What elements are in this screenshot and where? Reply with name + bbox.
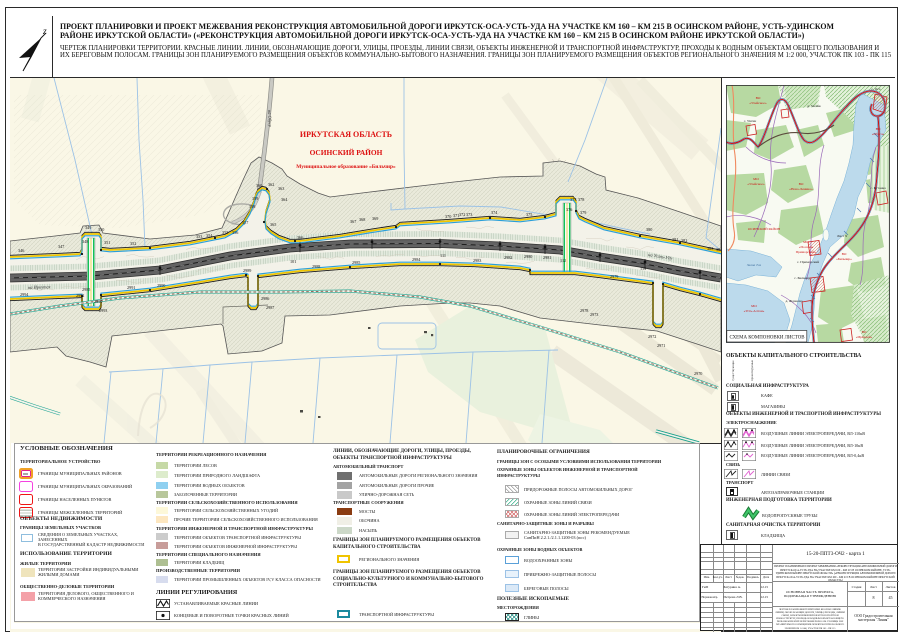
svg-text:354: 354 xyxy=(206,233,213,238)
svg-text:2981: 2981 xyxy=(543,255,551,260)
svg-text:на Обусу: на Обусу xyxy=(267,110,273,127)
svg-text:«Улейское»: «Улейское» xyxy=(747,182,764,186)
svg-text:2988: 2988 xyxy=(312,264,320,269)
svg-text:2993: 2993 xyxy=(99,308,107,313)
svg-text:381: 381 xyxy=(672,237,678,242)
svg-text:356: 356 xyxy=(232,230,238,235)
svg-text:Залив Тга: Залив Тга xyxy=(747,263,761,267)
svg-text:с. Унгин: с. Унгин xyxy=(744,119,757,123)
svg-text:«Поселок: «Поселок xyxy=(799,245,814,249)
svg-text:362: 362 xyxy=(268,182,274,187)
svg-text:383: 383 xyxy=(707,246,713,251)
svg-text:2990: 2990 xyxy=(94,299,102,304)
svg-text:2982: 2982 xyxy=(504,255,512,260)
svg-text:112: 112 xyxy=(560,258,566,263)
svg-text:2972: 2972 xyxy=(648,334,656,339)
svg-text:«Улейское»: «Улейское» xyxy=(749,101,766,105)
svg-text:351: 351 xyxy=(104,240,110,245)
svg-text:с. Кутанка: с. Кутанка xyxy=(870,186,886,190)
svg-text:с. Оса: с. Оса xyxy=(872,87,881,91)
svg-text:ВО: ВО xyxy=(842,252,847,256)
svg-text:ИРКУТСКАЯ ОБЛАСТЬ: ИРКУТСКАЯ ОБЛАСТЬ xyxy=(300,130,392,139)
svg-text:101: 101 xyxy=(290,259,296,264)
svg-text:ВО: ВО xyxy=(799,182,804,186)
svg-text:2979: 2979 xyxy=(610,274,618,279)
svg-text:347: 347 xyxy=(58,244,64,249)
svg-text:на Иркутск: на Иркутск xyxy=(28,284,52,290)
svg-text:2985: 2985 xyxy=(82,287,90,292)
svg-text:2980: 2980 xyxy=(524,254,532,259)
svg-text:373: 373 xyxy=(466,212,472,217)
svg-text:z: z xyxy=(42,27,47,37)
svg-text:375: 375 xyxy=(526,212,532,217)
svg-text:360: 360 xyxy=(256,183,262,188)
svg-text:379: 379 xyxy=(580,210,586,215)
svg-text:366: 366 xyxy=(297,235,303,240)
svg-text:374: 374 xyxy=(491,210,498,215)
svg-text:ОСИНСКИЙ РАЙОН: ОСИНСКИЙ РАЙОН xyxy=(310,148,383,157)
svg-text:Муниципальное образование «Бил: Муниципальное образование «Бильчир» xyxy=(296,163,396,170)
svg-text:«Усть-Алтан»: «Усть-Алтан» xyxy=(744,309,765,313)
svg-text:372: 372 xyxy=(459,212,465,217)
svg-text:365: 365 xyxy=(270,222,276,227)
svg-text:2991: 2991 xyxy=(127,285,135,290)
svg-text:369: 369 xyxy=(372,216,378,221)
svg-text:Приморский»: Приморский» xyxy=(796,250,817,254)
svg-text:МО: МО xyxy=(753,177,759,181)
svg-text:358: 358 xyxy=(249,204,255,209)
svg-text:МО: МО xyxy=(803,240,809,244)
svg-text:ВО: ВО xyxy=(756,96,761,100)
svg-text:111: 111 xyxy=(440,253,446,258)
svg-text:2992: 2992 xyxy=(76,293,84,298)
svg-text:350: 350 xyxy=(98,227,104,232)
svg-text:363: 363 xyxy=(278,186,284,191)
svg-text:355: 355 xyxy=(222,230,228,235)
svg-text:2984: 2984 xyxy=(412,257,421,262)
svg-text:«Бильчир»: «Бильчир» xyxy=(836,257,852,261)
svg-text:с. Приморский: с. Приморский xyxy=(797,260,819,264)
svg-text:346: 346 xyxy=(18,248,24,253)
svg-text:2986: 2986 xyxy=(261,296,269,301)
svg-text:2983: 2983 xyxy=(473,258,481,263)
svg-text:ВО: ВО xyxy=(876,127,881,131)
svg-text:Лист 9: Лист 9 xyxy=(837,234,847,238)
svg-text:ВО: ВО xyxy=(862,330,867,334)
svg-text:2973: 2973 xyxy=(590,312,598,317)
svg-text:МО: МО xyxy=(751,304,757,308)
svg-text:2985: 2985 xyxy=(352,260,360,265)
svg-text:353: 353 xyxy=(196,234,202,239)
svg-text:2987: 2987 xyxy=(266,305,274,310)
svg-text:367: 367 xyxy=(350,219,356,224)
svg-text:«Ирхидей»: «Ирхидей» xyxy=(856,335,873,339)
svg-text:2978: 2978 xyxy=(580,308,588,313)
svg-text:2990: 2990 xyxy=(157,283,165,288)
svg-text:ОСИНСКИЙ РАЙОН: ОСИНСКИЙ РАЙОН xyxy=(748,226,781,231)
svg-text:«Ново-Ленино»: «Ново-Ленино» xyxy=(789,187,813,191)
svg-text:348: 348 xyxy=(82,239,88,244)
svg-text:2989: 2989 xyxy=(243,268,251,273)
svg-text:378: 378 xyxy=(578,197,584,202)
svg-text:с. Бильчир: с. Бильчир xyxy=(794,276,810,280)
svg-text:д. Заглик: д. Заглик xyxy=(807,104,821,108)
svg-text:357: 357 xyxy=(242,220,248,225)
svg-text:2971: 2971 xyxy=(657,343,665,348)
svg-text:380: 380 xyxy=(646,227,652,232)
svg-text:368: 368 xyxy=(359,217,365,222)
svg-text:2970: 2970 xyxy=(694,371,702,376)
svg-text:2994: 2994 xyxy=(20,292,29,297)
svg-text:382: 382 xyxy=(681,238,687,243)
svg-text:376: 376 xyxy=(566,207,572,212)
svg-text:352: 352 xyxy=(130,241,136,246)
svg-text:д. Жданово: д. Жданово xyxy=(785,299,802,303)
svg-text:364: 364 xyxy=(281,197,288,202)
svg-text:349: 349 xyxy=(85,225,91,230)
svg-text:СХЕМА КОМПОНОВКИ ЛИСТОВ: СХЕМА КОМПОНОВКИ ЛИСТОВ xyxy=(730,336,806,341)
svg-text:359: 359 xyxy=(252,196,258,201)
svg-text:«Обуса»: «Обуса» xyxy=(872,132,885,136)
svg-text:370: 370 xyxy=(445,214,451,219)
svg-text:377: 377 xyxy=(570,197,576,202)
